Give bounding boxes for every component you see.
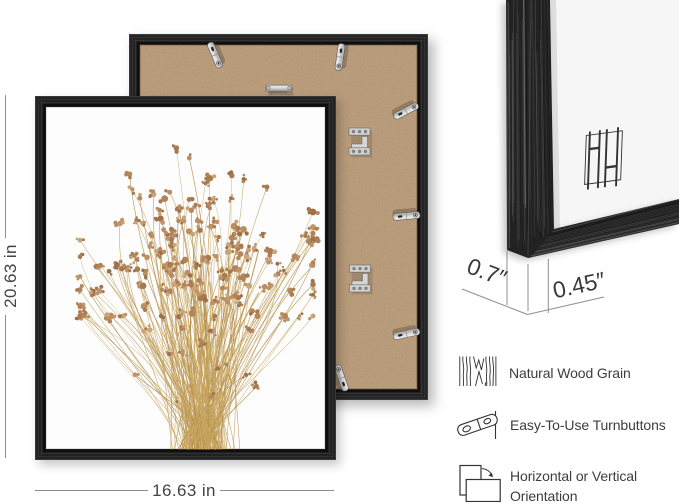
svg-text:0.7″: 0.7″	[464, 253, 511, 292]
